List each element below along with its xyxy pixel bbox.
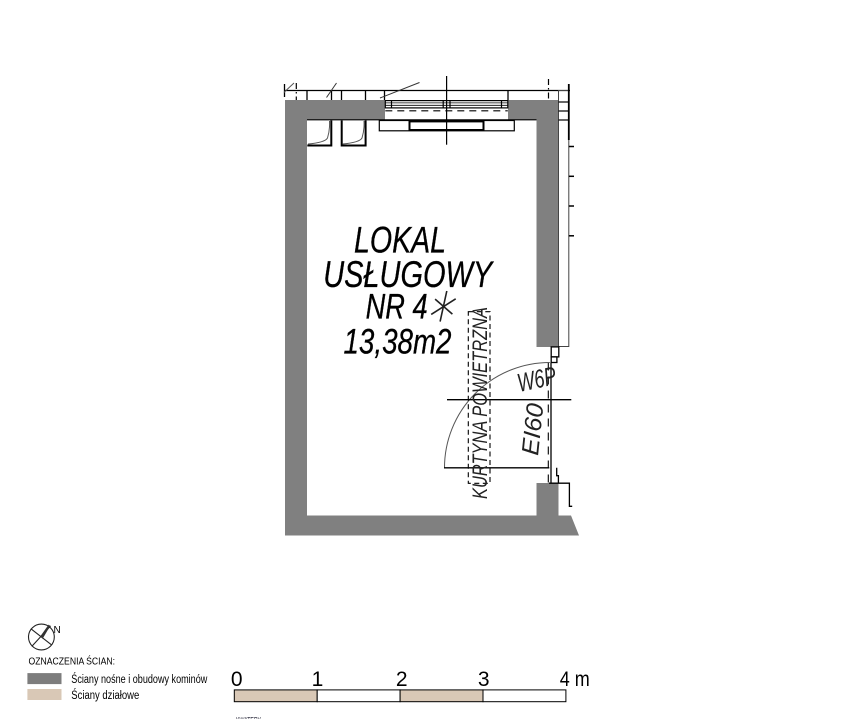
svg-text:KWATERY: KWATERY bbox=[236, 716, 261, 719]
svg-text:2: 2 bbox=[396, 668, 408, 691]
svg-text:3: 3 bbox=[478, 668, 490, 691]
svg-text:Ściany działowe: Ściany działowe bbox=[71, 689, 139, 702]
svg-text:13,38m2: 13,38m2 bbox=[344, 322, 452, 361]
svg-text:1: 1 bbox=[312, 668, 324, 691]
svg-text:OZNACZENIA ŚCIAN:: OZNACZENIA ŚCIAN: bbox=[29, 655, 116, 668]
svg-text:Ściany nośne i obudowy kominów: Ściany nośne i obudowy kominów bbox=[71, 673, 208, 686]
svg-text:4 m: 4 m bbox=[560, 668, 590, 691]
svg-text:KURTYNA POWIETRZNA: KURTYNA POWIETRZNA bbox=[469, 307, 492, 499]
svg-text:N: N bbox=[54, 625, 61, 636]
svg-text:EI60: EI60 bbox=[517, 401, 549, 456]
svg-text:0: 0 bbox=[231, 668, 243, 691]
svg-text:NR 4: NR 4 bbox=[366, 288, 428, 327]
